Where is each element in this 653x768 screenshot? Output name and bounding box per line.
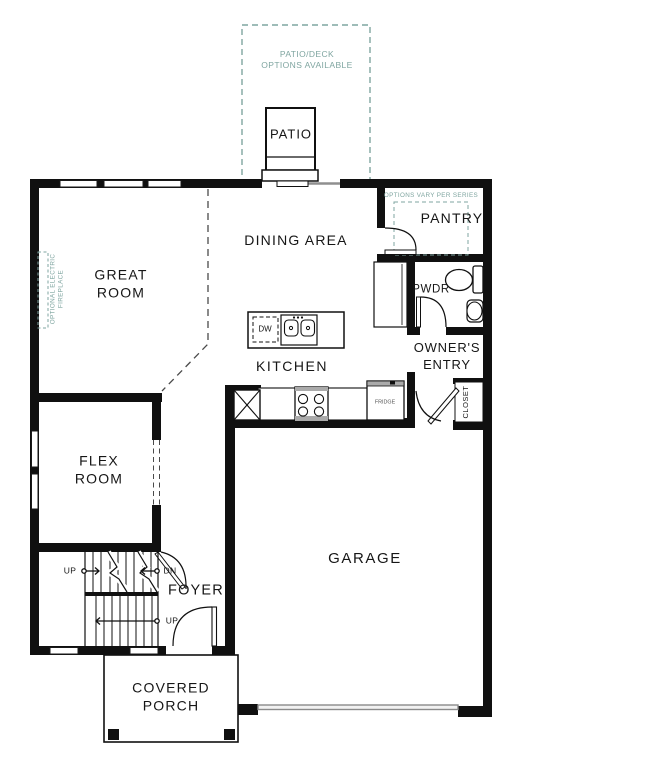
stairs-dn-label: DN: [163, 565, 176, 576]
wall-garage-bottom-right: [458, 706, 492, 717]
owners-entry-door: [416, 388, 459, 424]
fridge-label: FRIDGE: [375, 399, 395, 406]
window-foyer-2: [130, 648, 158, 655]
corner-cabinet: [234, 390, 260, 420]
sink-bowl: [467, 302, 482, 320]
wall-right: [483, 179, 492, 717]
window-top-3: [148, 181, 181, 188]
slider-panel-inner: [277, 181, 308, 187]
room-label-pantry: PANTRY: [421, 209, 484, 227]
room-label-porch: COVERED PORCH: [132, 679, 210, 716]
room-label-patio: PATIO: [270, 125, 312, 142]
wall-left: [30, 179, 39, 655]
room-label-flex: FLEX ROOM: [75, 452, 123, 489]
patio-deck-note: PATIO/DECK OPTIONS AVAILABLE: [237, 49, 377, 71]
room-label-foyer: FOYER: [168, 581, 224, 600]
front-door-opening: [166, 646, 212, 655]
porch-post-right: [224, 729, 235, 740]
front-door: [173, 607, 217, 646]
powder-room-fixtures: [446, 266, 484, 322]
stair-landing-divider: [85, 592, 158, 596]
window-foyer-1: [50, 648, 78, 655]
wall-pwdr-south-b: [446, 327, 483, 335]
dishwasher-label: DW: [258, 325, 271, 336]
floor-plan: PATIO/DECK OPTIONS AVAILABLE PATIO OPTIO…: [0, 0, 653, 768]
room-label-great-room: GREAT ROOM: [94, 266, 147, 303]
stair-break-lines: [108, 552, 157, 592]
window-flex-2: [32, 474, 39, 509]
window-flex-1: [32, 431, 39, 467]
great-room-boundary-dashed: [162, 189, 208, 391]
room-label-pwdr: PWDR: [412, 282, 450, 297]
window-top-1: [60, 181, 97, 188]
room-label-dining: DINING AREA: [244, 231, 347, 249]
stairs-up2-label: UP: [166, 615, 179, 626]
wall-top: [30, 179, 492, 188]
window-top-2: [104, 181, 143, 188]
toilet-tank: [473, 266, 483, 293]
room-label-kitchen: KITCHEN: [256, 357, 328, 375]
flex-cased-opening: [154, 440, 160, 505]
floor-plan-drawing: [0, 0, 653, 768]
staircase: [82, 552, 159, 646]
wall-pwdr-south-a: [415, 327, 420, 335]
patio-slider: [262, 170, 340, 188]
options-vary-note: OPTIONS VARY PER SERIES: [376, 192, 486, 200]
wall-flex-right-upper: [152, 393, 161, 440]
patio-structure: [266, 108, 315, 180]
slider-panel-outer: [262, 170, 318, 181]
closet-label: CLOSET: [461, 385, 471, 418]
fireplace-note: OPTIONAL ELECTRIC FIREPLACE: [50, 229, 67, 349]
powder-room-door: [417, 297, 447, 327]
wall-fridge-east: [407, 372, 415, 424]
fireplace-option-outline: [38, 252, 48, 328]
stairs-up-label: UP: [64, 565, 77, 576]
porch-post-left: [108, 729, 119, 740]
wall-flex-top: [30, 393, 162, 402]
stove: [295, 387, 328, 421]
wall-xbox-top: [225, 385, 261, 390]
room-label-garage: GARAGE: [328, 549, 402, 569]
garage-door: [258, 705, 458, 710]
entry-cabinet: [374, 262, 407, 327]
room-label-owners-entry: OWNER'S ENTRY: [414, 339, 481, 373]
wall-stairs-top: [30, 543, 161, 552]
pantry-door: [385, 228, 416, 255]
